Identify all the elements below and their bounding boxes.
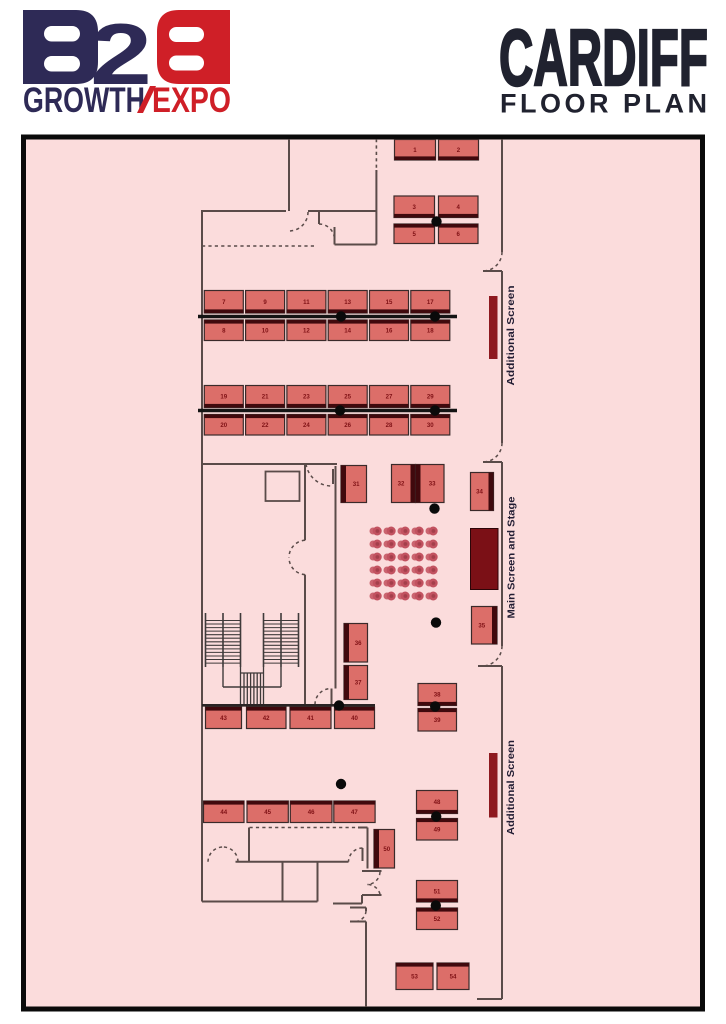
svg-text:43: 43 — [220, 715, 227, 722]
svg-text:24: 24 — [303, 422, 310, 429]
svg-text:5: 5 — [413, 231, 417, 238]
svg-text:27: 27 — [386, 394, 393, 401]
svg-text:46: 46 — [308, 809, 315, 816]
svg-text:48: 48 — [434, 799, 441, 806]
svg-text:3: 3 — [413, 204, 417, 211]
svg-text:41: 41 — [307, 715, 314, 722]
svg-text:44: 44 — [220, 809, 227, 816]
svg-text:36: 36 — [355, 640, 362, 647]
svg-text:50: 50 — [383, 846, 390, 853]
svg-text:23: 23 — [303, 394, 310, 401]
svg-text:39: 39 — [434, 717, 441, 724]
svg-text:45: 45 — [264, 809, 271, 816]
svg-text:38: 38 — [434, 692, 441, 699]
svg-text:49: 49 — [434, 826, 441, 833]
svg-text:37: 37 — [355, 680, 362, 687]
svg-text:53: 53 — [411, 973, 418, 980]
svg-text:10: 10 — [262, 327, 269, 334]
svg-text:22: 22 — [262, 422, 269, 429]
svg-text:54: 54 — [450, 973, 457, 980]
svg-text:11: 11 — [303, 299, 310, 306]
svg-text:Additional Screen: Additional Screen — [505, 740, 517, 835]
svg-text:20: 20 — [220, 422, 227, 429]
svg-text:EXPO: EXPO — [152, 81, 231, 120]
svg-text:Additional Screen: Additional Screen — [505, 286, 517, 386]
svg-text:21: 21 — [262, 394, 269, 401]
svg-text:14: 14 — [344, 327, 351, 334]
svg-text:47: 47 — [351, 809, 358, 816]
svg-text:19: 19 — [220, 394, 227, 401]
svg-text:13: 13 — [344, 299, 351, 306]
svg-text:25: 25 — [344, 394, 351, 401]
svg-text:12: 12 — [303, 327, 310, 334]
svg-text:34: 34 — [476, 489, 483, 496]
svg-text:FLOOR PLAN: FLOOR PLAN — [500, 89, 707, 119]
svg-text:31: 31 — [353, 481, 360, 488]
svg-text:GROWTH: GROWTH — [23, 81, 145, 120]
svg-text:32: 32 — [398, 481, 405, 488]
svg-text:40: 40 — [351, 715, 358, 722]
svg-text:35: 35 — [478, 622, 485, 629]
svg-text:Main Screen and Stage: Main Screen and Stage — [506, 496, 518, 618]
svg-text:52: 52 — [434, 916, 441, 923]
svg-text:30: 30 — [427, 422, 434, 429]
svg-text:4: 4 — [457, 204, 461, 211]
svg-text:15: 15 — [386, 299, 393, 306]
svg-text:26: 26 — [344, 422, 351, 429]
svg-text:28: 28 — [386, 422, 393, 429]
svg-text:17: 17 — [427, 299, 434, 306]
svg-text:33: 33 — [429, 481, 436, 488]
svg-text:6: 6 — [457, 231, 461, 238]
svg-text:29: 29 — [427, 394, 434, 401]
svg-text:51: 51 — [434, 888, 441, 895]
svg-text:16: 16 — [386, 327, 393, 334]
svg-text:18: 18 — [427, 327, 434, 334]
svg-text:42: 42 — [263, 715, 270, 722]
